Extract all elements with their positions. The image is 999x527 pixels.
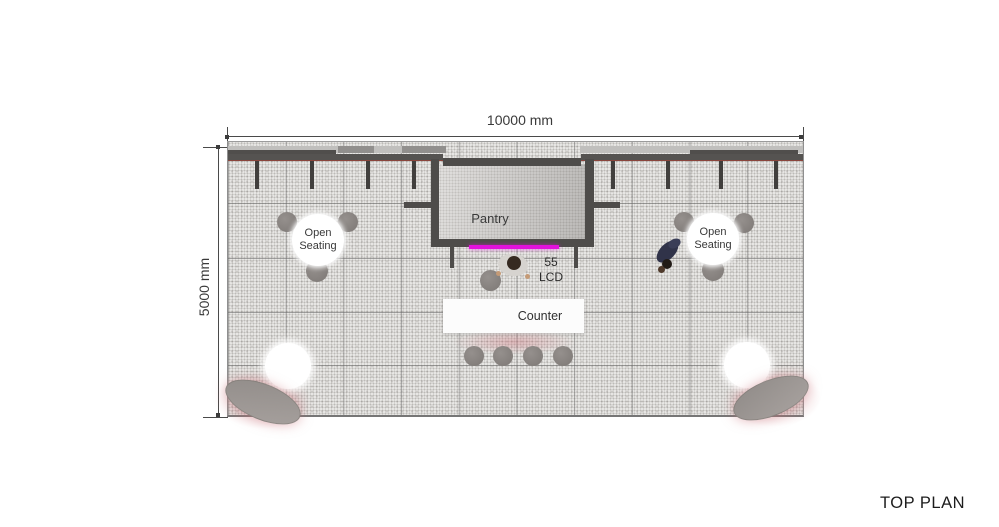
back-wall-outer-line bbox=[227, 141, 804, 143]
floor-plan-canvas: 10000 mm 5000 mm Pantry 55 LCD bbox=[0, 0, 999, 527]
grid-line bbox=[228, 365, 803, 366]
width-dimension-label: 10000 mm bbox=[455, 112, 585, 128]
person-head bbox=[507, 256, 521, 270]
lcd-label: 55 LCD bbox=[533, 255, 569, 284]
stool bbox=[523, 346, 543, 366]
pantry-label: Pantry bbox=[445, 211, 535, 226]
open-seating-table-left: Open Seating bbox=[292, 214, 344, 266]
person-presenter bbox=[495, 248, 537, 288]
wall-partition-tick bbox=[310, 161, 314, 189]
open-seating-label-right: Open Seating bbox=[694, 226, 731, 252]
counter-label: Counter bbox=[497, 309, 583, 323]
pantry-wall-left bbox=[431, 159, 440, 246]
pantry-wall-top bbox=[443, 158, 581, 166]
pantry-room bbox=[439, 164, 585, 239]
pantry-wall-stub-right bbox=[593, 202, 620, 208]
wall-partition-tick bbox=[412, 161, 416, 189]
back-wall-panel bbox=[338, 146, 374, 153]
width-dimension-line bbox=[227, 136, 803, 137]
person-visitor bbox=[652, 238, 686, 276]
stool bbox=[493, 346, 513, 366]
height-dimension-label: 5000 mm bbox=[196, 237, 212, 337]
stool bbox=[553, 346, 573, 366]
wall-partition-tick bbox=[366, 161, 370, 189]
width-dimension-end-right bbox=[799, 135, 803, 139]
partition-post-left bbox=[450, 246, 454, 268]
person-hand bbox=[525, 274, 530, 279]
width-dimension-end-left bbox=[225, 135, 229, 139]
stool bbox=[464, 346, 484, 366]
round-side-table-left bbox=[265, 343, 311, 389]
partition-post-right bbox=[574, 246, 578, 268]
wall-partition-tick bbox=[719, 161, 723, 189]
wall-partition-tick bbox=[774, 161, 778, 189]
back-wall-panel bbox=[402, 146, 446, 153]
pantry-wall-stub-left bbox=[404, 202, 431, 208]
open-seating-table-right: Open Seating bbox=[687, 213, 739, 265]
wall-partition-tick bbox=[255, 161, 259, 189]
wall-partition-tick bbox=[611, 161, 615, 189]
height-dimension-end-top bbox=[216, 145, 220, 149]
person-bag bbox=[658, 266, 665, 273]
wall-partition-tick bbox=[666, 161, 670, 189]
back-wall-trim bbox=[228, 160, 443, 161]
open-seating-label-left: Open Seating bbox=[299, 227, 336, 253]
person-hand bbox=[496, 271, 501, 276]
page-title: TOP PLAN bbox=[880, 494, 990, 513]
